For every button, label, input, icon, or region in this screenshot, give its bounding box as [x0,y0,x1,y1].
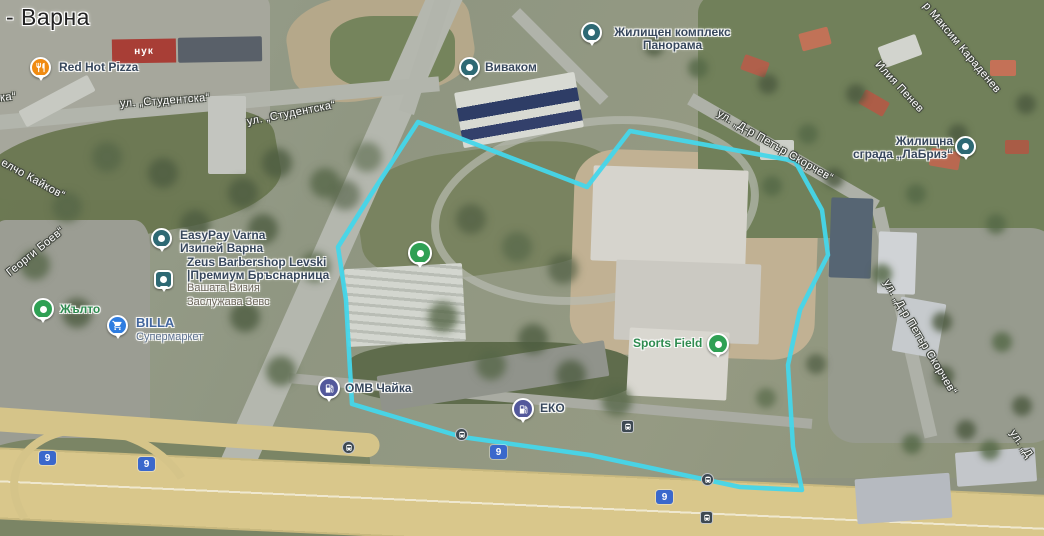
place-marker-panorama[interactable] [581,22,602,43]
poi-label-zhulto[interactable]: Жълто [60,303,100,316]
marker-dot [40,306,47,313]
poi-label-line: сграда „ЛаБриз“ [853,147,953,161]
poi-label-red-hot-pizza[interactable]: Red Hot Pizza [59,61,138,74]
gas-pump-icon [324,383,335,394]
tower-building [829,197,874,278]
house [990,60,1016,76]
map-area-title: - Варна [6,4,90,31]
warehouse-building [344,263,466,347]
poi-label-vivacom[interactable]: Виваком [485,61,537,74]
poi-label-omv[interactable]: ОМВ Чайка [345,382,412,395]
poi-label-line: Изипей Варна [180,241,263,255]
restaurant-icon [35,62,46,73]
poi-label-line: Панорама [643,38,702,52]
shopping-cart-icon [112,320,123,331]
building [208,96,246,174]
marker-dot [715,341,722,348]
place-marker-zeus-barbershop[interactable] [154,270,173,289]
place-marker-unlabeled[interactable] [408,241,432,265]
marker-dot [466,64,473,71]
road-shield-9: 9 [490,445,507,459]
poi-label-line: |Премиум Бръснарница [187,268,329,282]
poi-label-easypay[interactable]: EasyPay Varna Изипей Варна [180,229,265,254]
gas-station-marker-eko[interactable] [512,398,534,420]
bus-icon [703,514,711,522]
nuk-roof-text: нук [134,45,154,56]
street-label: ка“ [0,91,17,104]
poi-label-billa[interactable]: BILLA Супермаркет [136,317,203,343]
road-shield-9: 9 [656,490,673,504]
marker-dot [588,29,595,36]
poi-label-eko[interactable]: ЕКО [540,402,565,415]
bus-stop-icon[interactable] [700,511,713,524]
restaurant-marker-red-hot-pizza[interactable] [30,57,51,78]
poi-label-labriz[interactable]: Жилищна сграда „ЛаБриз“ [843,135,953,160]
poi-label-panorama[interactable]: Жилищен комплекс Панорама [600,26,745,51]
house [1005,140,1029,154]
poi-sub-line: Вашата Визия [187,282,260,294]
poi-label-sports-field[interactable]: Sports Field [633,337,702,350]
bus-stop-icon[interactable] [701,473,714,486]
bus-stop-icon[interactable] [455,428,468,441]
marker-dot [962,143,969,150]
place-marker-sports-field[interactable] [707,333,729,355]
map-canvas[interactable]: нук - Варна ка“ ул. „Студентска“ ул. „Ст… [0,0,1044,536]
place-marker-vivacom[interactable] [459,57,480,78]
poi-sub-line: Супермаркет [136,331,203,343]
marker-dot [160,276,167,283]
place-marker-zhulto[interactable] [32,298,54,320]
poi-label-zeus-barbershop[interactable]: Zeus Barbershop Levski |Премиум Бръснарн… [187,256,329,308]
building [178,36,262,62]
supermarket-marker-billa[interactable] [107,315,128,336]
place-marker-easypay[interactable] [151,228,172,249]
marker-dot [158,235,165,242]
bus-stop-icon[interactable] [342,441,355,454]
bus-icon [704,476,712,484]
bus-icon [345,444,353,452]
marker-dot [417,250,424,257]
poi-label-line: BILLA [136,315,174,330]
place-marker-labriz[interactable] [955,136,976,157]
construction-building [590,165,748,265]
bus-stop-icon[interactable] [621,420,634,433]
road-shield-9: 9 [138,457,155,471]
gas-pump-icon [518,404,529,415]
building [855,473,953,525]
poi-sub-line: Заслужава Зевс [187,296,270,308]
bus-icon [458,431,466,439]
road-shield-9: 9 [39,451,56,465]
gas-station-marker-omv[interactable] [318,377,340,399]
bus-icon [624,423,632,431]
